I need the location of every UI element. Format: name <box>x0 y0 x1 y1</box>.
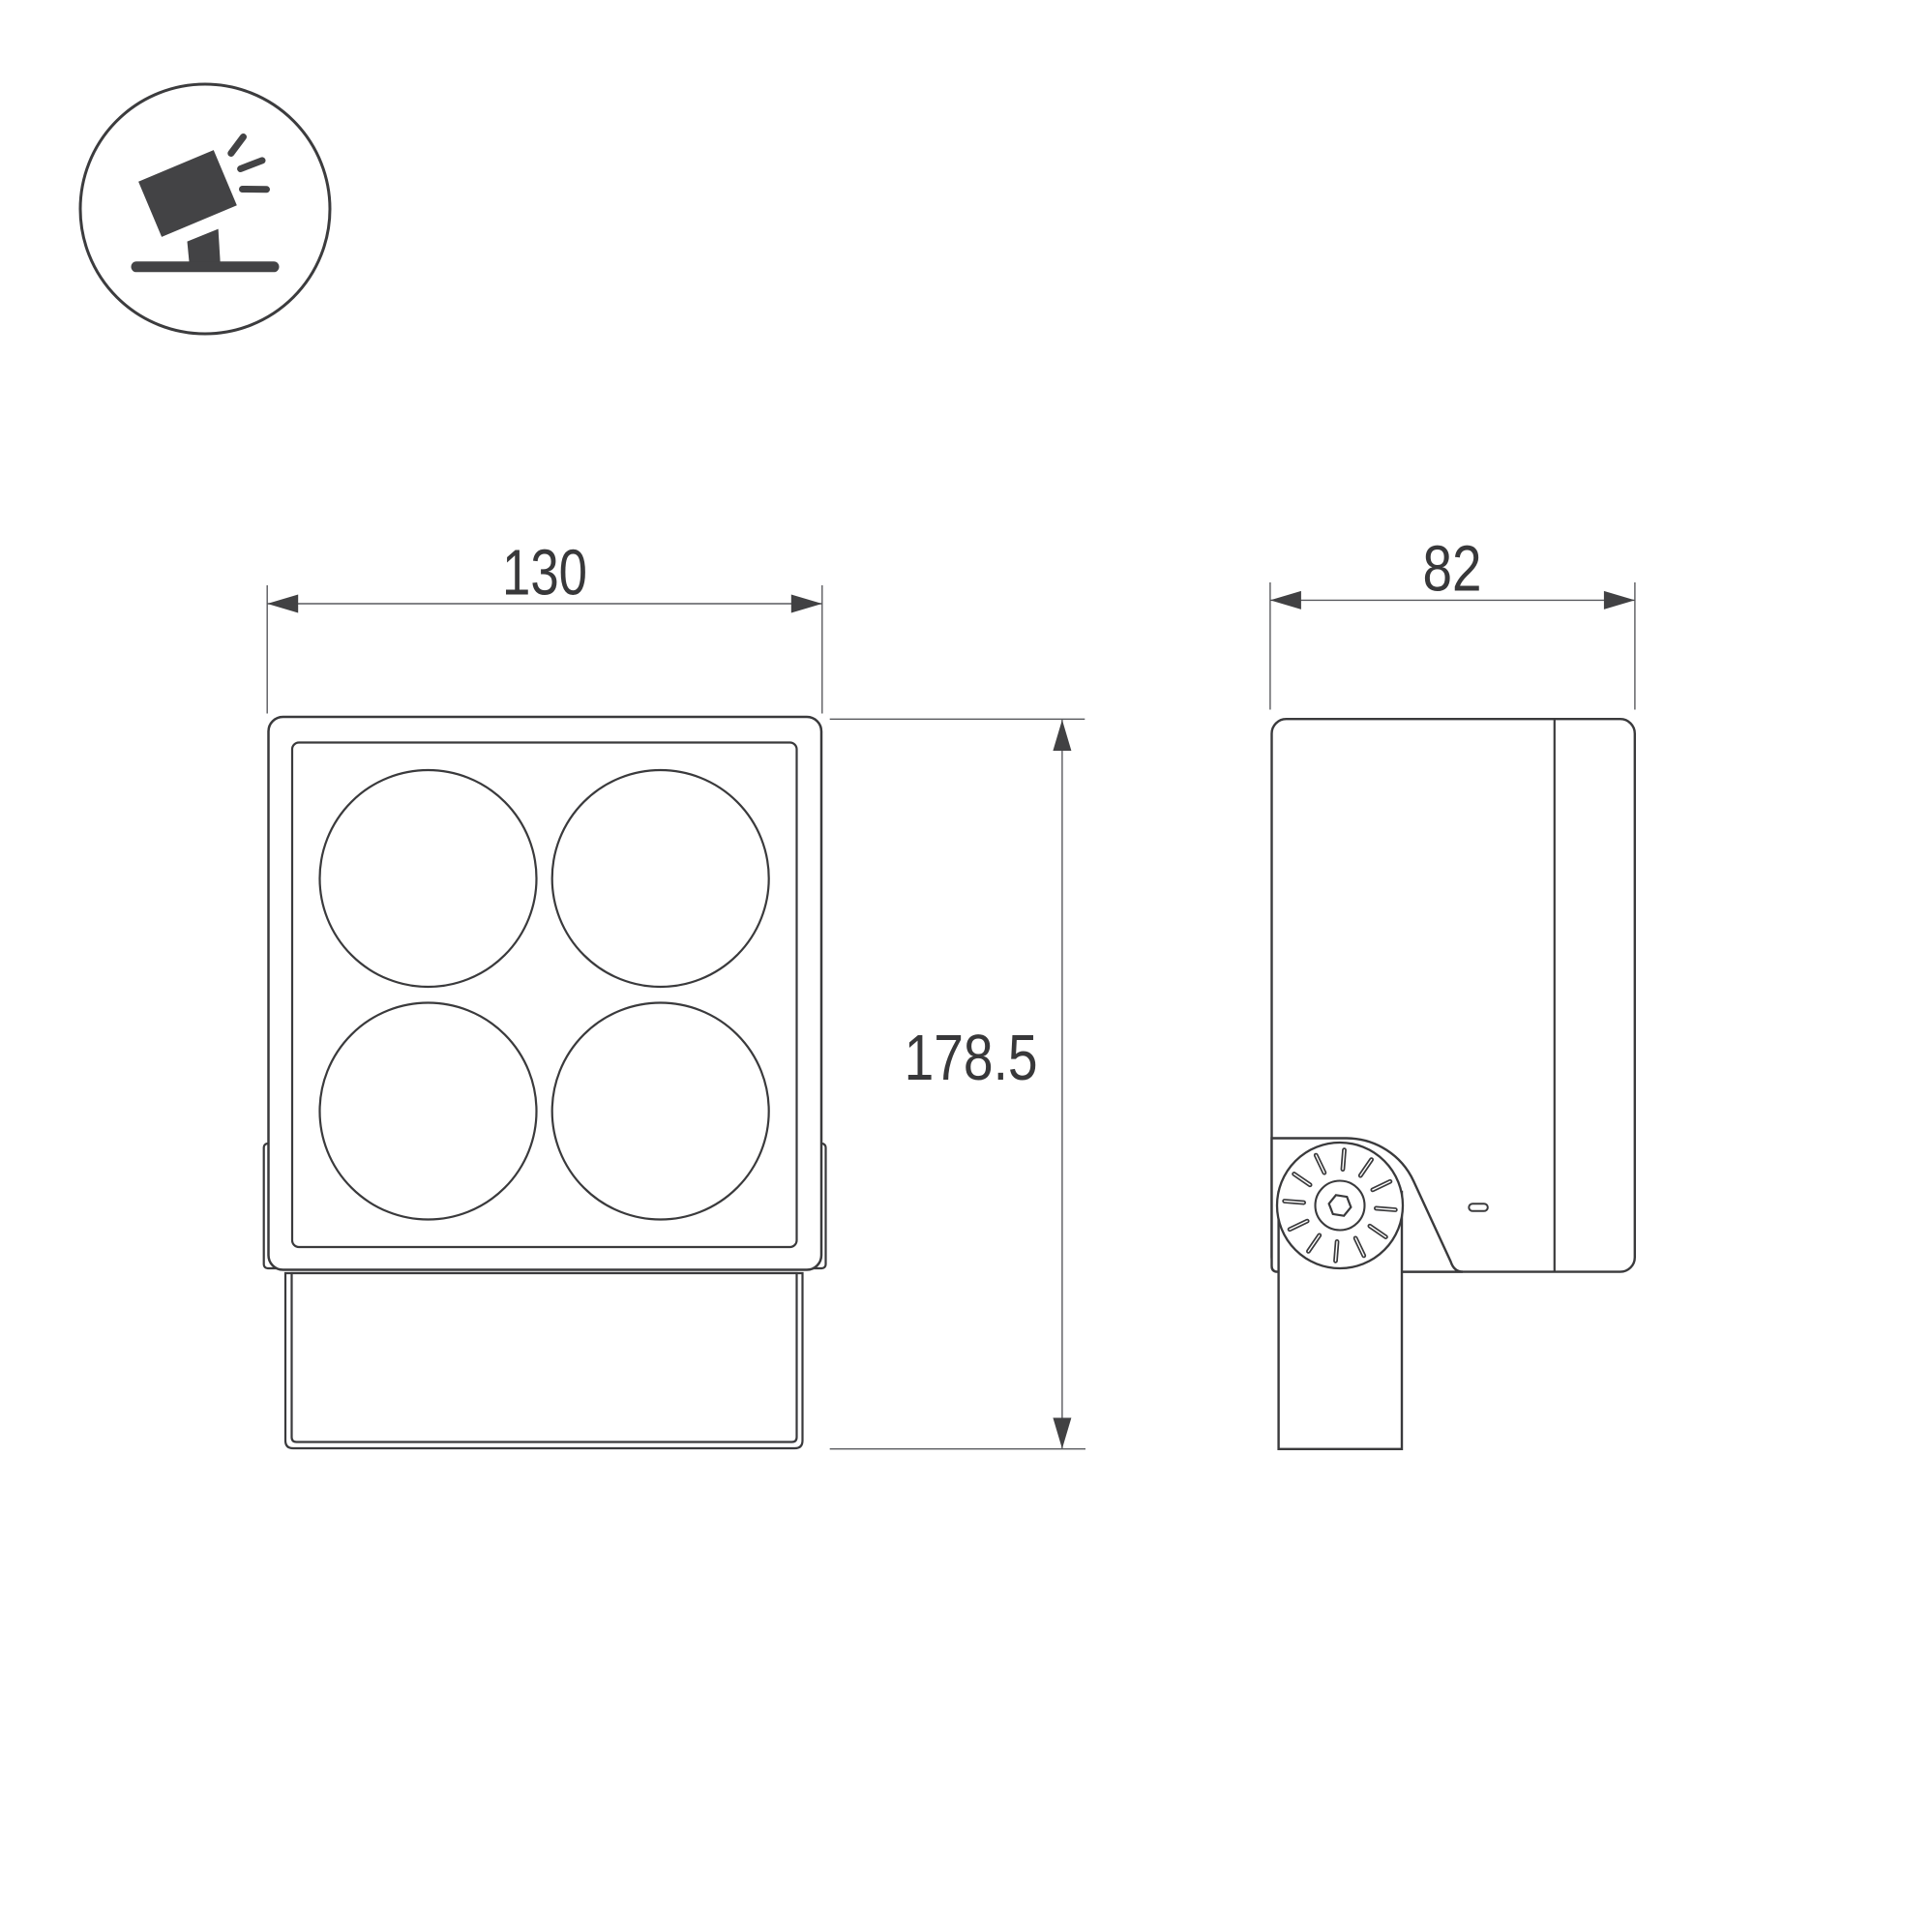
svg-text:178.5: 178.5 <box>905 1022 1038 1094</box>
svg-text:130: 130 <box>502 537 587 609</box>
svg-text:82: 82 <box>1423 533 1482 606</box>
